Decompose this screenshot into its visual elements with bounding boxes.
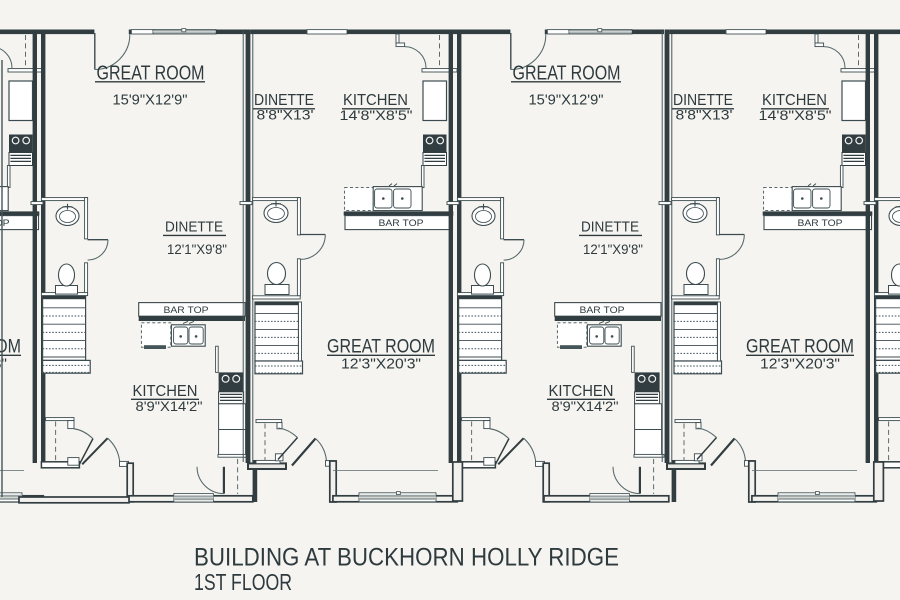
svg-text:BUILDING AT BUCKHORN HOLLY RID: BUILDING AT BUCKHORN HOLLY RIDGE (194, 544, 619, 572)
svg-text:1ST FLOOR: 1ST FLOOR (194, 569, 292, 595)
